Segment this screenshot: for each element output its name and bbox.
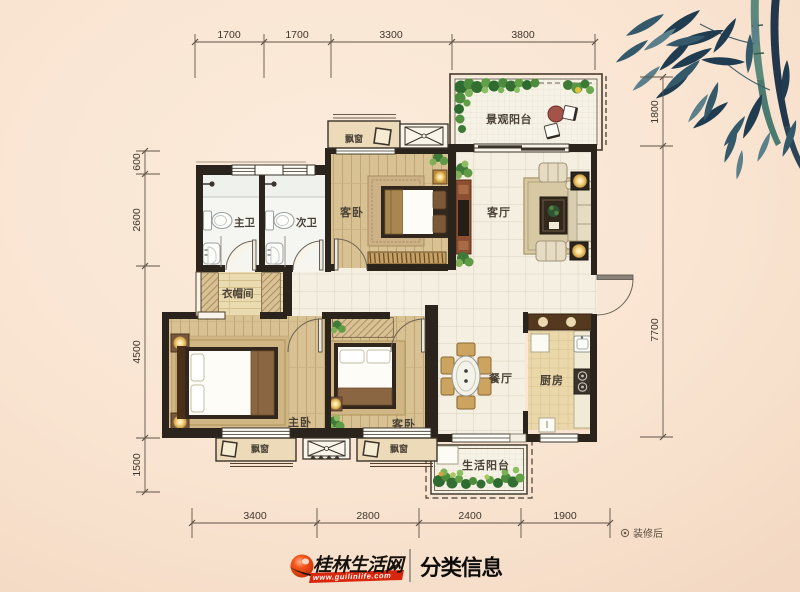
svg-text:3800: 3800 [511, 29, 535, 41]
svg-text:1700: 1700 [285, 29, 309, 41]
svg-text:3300: 3300 [379, 29, 403, 41]
svg-text:1700: 1700 [217, 29, 241, 41]
svg-text:2600: 2600 [131, 208, 143, 232]
svg-text:1800: 1800 [649, 100, 661, 124]
svg-text:1500: 1500 [131, 453, 143, 477]
svg-text:厨房: 厨房 [540, 373, 564, 387]
svg-text:2400: 2400 [458, 510, 482, 522]
svg-text:600: 600 [131, 153, 143, 171]
svg-text:主卧: 主卧 [288, 415, 312, 429]
svg-text:飘窗: 飘窗 [390, 443, 408, 454]
svg-text:客厅: 客厅 [486, 205, 511, 219]
svg-text:1900: 1900 [553, 510, 577, 522]
svg-text:次卫: 次卫 [296, 216, 317, 229]
svg-text:衣帽间: 衣帽间 [222, 287, 254, 300]
svg-text:装修后: 装修后 [633, 527, 663, 540]
svg-text:餐厅: 餐厅 [488, 371, 513, 385]
svg-text:分类信息: 分类信息 [420, 555, 503, 580]
svg-text:景观阳台: 景观阳台 [485, 112, 532, 126]
svg-text:3400: 3400 [243, 510, 267, 522]
svg-text:4500: 4500 [131, 340, 143, 364]
svg-text:飘窗: 飘窗 [251, 443, 269, 454]
svg-text:桂林生活网: 桂林生活网 [313, 554, 406, 575]
svg-text:飘窗: 飘窗 [345, 133, 363, 144]
svg-text:客卧: 客卧 [339, 205, 364, 219]
svg-text:7700: 7700 [649, 318, 661, 342]
svg-text:生活阳台: 生活阳台 [462, 458, 510, 472]
svg-text:主卫: 主卫 [234, 216, 255, 229]
svg-text:2800: 2800 [356, 510, 380, 522]
